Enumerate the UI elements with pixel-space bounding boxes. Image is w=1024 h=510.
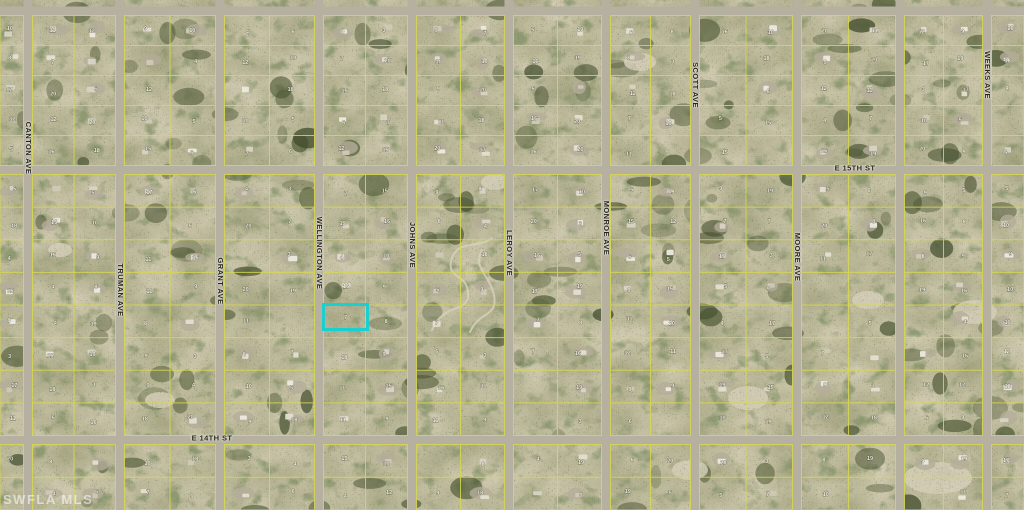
svg-text:12: 12 — [10, 116, 16, 122]
svg-text:7: 7 — [340, 57, 343, 63]
svg-text:5: 5 — [719, 493, 722, 499]
listing-map-photo: 1081712511127206122016189104121051564612… — [0, 0, 1024, 510]
svg-text:7: 7 — [723, 219, 726, 225]
svg-text:10: 10 — [719, 416, 725, 422]
svg-text:9: 9 — [824, 60, 827, 66]
svg-text:19: 19 — [290, 288, 296, 294]
svg-text:12: 12 — [822, 414, 828, 420]
street-label-e-14th-st: E 14TH ST — [192, 434, 233, 442]
svg-text:11: 11 — [627, 317, 633, 323]
svg-text:15: 15 — [386, 383, 392, 389]
svg-text:3: 3 — [671, 60, 674, 66]
svg-text:20: 20 — [385, 59, 391, 65]
svg-text:15: 15 — [382, 188, 388, 194]
svg-text:9: 9 — [480, 287, 483, 293]
svg-text:7: 7 — [245, 151, 248, 157]
svg-text:20: 20 — [89, 120, 95, 126]
svg-text:16: 16 — [962, 353, 968, 359]
svg-text:15: 15 — [667, 287, 673, 293]
svg-text:18: 18 — [288, 87, 294, 93]
svg-text:11: 11 — [438, 120, 444, 126]
street-label-canton-ave: CANTON AVE — [24, 122, 32, 175]
svg-text:18: 18 — [1005, 59, 1011, 65]
svg-text:8: 8 — [8, 56, 11, 62]
street-label-grant-ave: GRANT AVE — [216, 258, 224, 305]
svg-text:17: 17 — [1003, 458, 1009, 464]
svg-text:6: 6 — [291, 30, 294, 36]
svg-text:12: 12 — [89, 29, 95, 35]
svg-text:6: 6 — [292, 489, 295, 495]
svg-text:5: 5 — [959, 118, 962, 124]
svg-text:16: 16 — [961, 288, 967, 294]
svg-text:15: 15 — [145, 146, 151, 152]
svg-text:20: 20 — [245, 223, 251, 229]
svg-text:19: 19 — [957, 56, 963, 62]
svg-text:10: 10 — [579, 190, 585, 196]
svg-text:11: 11 — [145, 257, 151, 263]
svg-text:9: 9 — [921, 459, 924, 465]
svg-text:6: 6 — [190, 150, 193, 156]
svg-text:19: 19 — [668, 189, 674, 195]
svg-text:18: 18 — [477, 490, 483, 496]
svg-text:6: 6 — [628, 255, 631, 261]
svg-text:18: 18 — [341, 355, 347, 361]
svg-text:9: 9 — [383, 352, 386, 358]
svg-text:20: 20 — [577, 147, 583, 153]
svg-text:9: 9 — [961, 415, 964, 421]
svg-text:9: 9 — [194, 284, 197, 290]
street-label-e-15th-st: E 15TH ST — [835, 164, 876, 172]
svg-text:16: 16 — [438, 386, 444, 392]
svg-text:11: 11 — [867, 88, 873, 94]
svg-text:7: 7 — [483, 31, 486, 37]
svg-text:18: 18 — [291, 417, 297, 423]
svg-text:6: 6 — [95, 489, 98, 495]
svg-text:19: 19 — [578, 460, 584, 466]
street-label-leroy-ave: LEROY AVE — [505, 230, 513, 276]
svg-text:8: 8 — [671, 30, 674, 36]
svg-text:16: 16 — [48, 150, 54, 156]
svg-text:5: 5 — [292, 117, 295, 123]
svg-text:9: 9 — [435, 28, 438, 34]
svg-text:20: 20 — [669, 321, 675, 327]
svg-text:5: 5 — [436, 288, 439, 294]
svg-text:12: 12 — [821, 86, 827, 92]
svg-text:9: 9 — [147, 383, 150, 389]
svg-text:11: 11 — [10, 416, 16, 422]
svg-text:20: 20 — [7, 457, 13, 463]
street-label-johns-ave: JOHNS AVE — [408, 222, 416, 268]
svg-text:9: 9 — [145, 353, 148, 359]
svg-text:16: 16 — [532, 59, 538, 65]
svg-text:7: 7 — [288, 220, 291, 226]
svg-text:10: 10 — [92, 221, 98, 227]
svg-text:11: 11 — [146, 289, 152, 295]
svg-text:5: 5 — [962, 188, 965, 194]
svg-text:7: 7 — [344, 192, 347, 198]
svg-text:9: 9 — [385, 417, 388, 423]
svg-text:18: 18 — [192, 456, 198, 462]
svg-text:11: 11 — [339, 386, 345, 392]
svg-text:9: 9 — [961, 29, 964, 35]
svg-text:5: 5 — [667, 257, 670, 263]
street-label-truman-ave: TRUMAN AVE — [116, 263, 124, 316]
svg-text:16: 16 — [343, 284, 349, 290]
street-label-moore-ave: MOORE AVE — [793, 233, 801, 282]
svg-text:3: 3 — [484, 353, 487, 359]
svg-text:6: 6 — [629, 419, 632, 425]
svg-text:9: 9 — [719, 186, 722, 192]
svg-text:8: 8 — [482, 462, 485, 468]
svg-text:17: 17 — [532, 289, 538, 295]
street-label-weeks-ave: WEEKS AVE — [983, 51, 991, 99]
svg-text:8: 8 — [385, 319, 388, 325]
svg-text:18: 18 — [142, 417, 148, 423]
svg-text:17: 17 — [11, 383, 17, 389]
svg-text:7: 7 — [821, 351, 824, 357]
svg-text:10: 10 — [768, 30, 774, 36]
watermark: SWFLA MLS — [3, 492, 93, 507]
svg-text:19: 19 — [89, 352, 95, 358]
svg-text:15: 15 — [382, 148, 388, 154]
svg-text:15: 15 — [341, 456, 347, 462]
svg-text:16: 16 — [722, 30, 728, 36]
svg-text:16: 16 — [531, 116, 537, 122]
svg-text:9: 9 — [96, 255, 99, 261]
svg-text:9: 9 — [436, 490, 439, 496]
svg-text:19: 19 — [340, 221, 346, 227]
svg-text:7: 7 — [1005, 493, 1008, 499]
svg-text:20: 20 — [50, 92, 56, 98]
svg-text:5: 5 — [13, 187, 16, 193]
svg-text:16: 16 — [530, 150, 536, 156]
svg-text:8: 8 — [922, 254, 925, 260]
svg-text:17: 17 — [719, 254, 725, 260]
highlighted-parcel-outline — [322, 303, 369, 331]
svg-text:8: 8 — [963, 220, 966, 226]
svg-text:20: 20 — [480, 88, 486, 94]
svg-text:16: 16 — [821, 149, 827, 155]
svg-text:6: 6 — [631, 457, 634, 463]
svg-text:12: 12 — [923, 383, 929, 389]
svg-text:10: 10 — [246, 384, 252, 390]
svg-text:11: 11 — [50, 28, 56, 34]
svg-text:9: 9 — [580, 493, 583, 499]
svg-text:10: 10 — [383, 253, 389, 259]
svg-text:9: 9 — [383, 284, 386, 290]
svg-text:7: 7 — [435, 320, 438, 326]
svg-text:11: 11 — [243, 319, 249, 325]
svg-text:20: 20 — [574, 119, 580, 125]
svg-text:8: 8 — [822, 457, 825, 463]
svg-text:9: 9 — [144, 26, 147, 32]
svg-text:15: 15 — [342, 88, 348, 94]
svg-text:9: 9 — [767, 286, 770, 292]
svg-text:19: 19 — [765, 420, 771, 426]
svg-text:20: 20 — [821, 223, 827, 229]
svg-text:3: 3 — [537, 318, 540, 324]
svg-text:19: 19 — [767, 189, 773, 195]
svg-text:5: 5 — [52, 415, 55, 421]
svg-text:7: 7 — [869, 116, 872, 122]
svg-text:18: 18 — [871, 416, 877, 422]
svg-text:3: 3 — [872, 384, 875, 390]
svg-text:7: 7 — [387, 120, 390, 126]
svg-text:15: 15 — [765, 120, 771, 126]
svg-text:18: 18 — [669, 91, 675, 97]
svg-text:8: 8 — [478, 186, 481, 192]
svg-text:6: 6 — [342, 120, 345, 126]
svg-text:20: 20 — [720, 460, 726, 466]
svg-text:18: 18 — [94, 148, 100, 154]
svg-text:10: 10 — [577, 27, 583, 33]
svg-text:15: 15 — [768, 385, 774, 391]
svg-text:20: 20 — [243, 287, 249, 293]
svg-text:5: 5 — [91, 190, 94, 196]
svg-text:8: 8 — [144, 321, 147, 327]
svg-text:9: 9 — [627, 288, 630, 294]
svg-text:9: 9 — [962, 254, 965, 260]
svg-text:9: 9 — [435, 190, 438, 196]
svg-text:10: 10 — [145, 461, 151, 467]
svg-text:15: 15 — [47, 354, 53, 360]
svg-text:6: 6 — [767, 89, 770, 95]
svg-text:3: 3 — [248, 456, 251, 462]
street-label-scott-ave: SCOTT AVE — [691, 62, 699, 108]
svg-text:16: 16 — [920, 219, 926, 225]
svg-text:9: 9 — [823, 383, 826, 389]
svg-text:15: 15 — [193, 256, 199, 262]
svg-text:3: 3 — [627, 56, 630, 62]
svg-text:9: 9 — [963, 149, 966, 155]
svg-text:19: 19 — [577, 284, 583, 290]
svg-text:8: 8 — [49, 459, 52, 465]
svg-text:9: 9 — [437, 86, 440, 92]
svg-text:18: 18 — [1005, 384, 1011, 390]
svg-text:10: 10 — [141, 116, 147, 122]
svg-text:10: 10 — [436, 60, 442, 66]
svg-text:3: 3 — [770, 253, 773, 259]
svg-text:18: 18 — [49, 387, 55, 393]
svg-text:10: 10 — [189, 28, 195, 34]
svg-text:9: 9 — [671, 383, 674, 389]
svg-text:7: 7 — [628, 116, 631, 122]
svg-text:8: 8 — [872, 219, 875, 225]
svg-text:8: 8 — [341, 29, 344, 35]
svg-text:19: 19 — [867, 456, 873, 462]
svg-text:5: 5 — [719, 116, 722, 122]
svg-text:19: 19 — [91, 322, 97, 328]
svg-text:16: 16 — [91, 420, 97, 426]
svg-text:10: 10 — [290, 56, 296, 62]
svg-text:20: 20 — [188, 414, 194, 420]
svg-text:15: 15 — [628, 219, 634, 225]
svg-text:3: 3 — [194, 354, 197, 360]
svg-text:19: 19 — [666, 121, 672, 127]
svg-text:16: 16 — [190, 190, 196, 196]
svg-text:10: 10 — [383, 462, 389, 468]
svg-text:17: 17 — [146, 190, 152, 196]
svg-text:12: 12 — [959, 382, 965, 388]
svg-text:12: 12 — [146, 87, 152, 93]
svg-text:10: 10 — [921, 119, 927, 125]
svg-text:10: 10 — [1005, 320, 1011, 326]
svg-text:5: 5 — [189, 224, 192, 230]
svg-text:11: 11 — [340, 417, 346, 423]
svg-text:18: 18 — [11, 223, 17, 229]
svg-text:6: 6 — [925, 416, 928, 422]
svg-text:6: 6 — [629, 31, 632, 37]
svg-text:3: 3 — [288, 186, 291, 192]
svg-text:17: 17 — [722, 349, 728, 355]
svg-text:11: 11 — [626, 151, 632, 157]
svg-text:11: 11 — [481, 383, 487, 389]
svg-text:5: 5 — [826, 186, 829, 192]
svg-text:18: 18 — [479, 118, 485, 124]
svg-text:18: 18 — [382, 87, 388, 93]
svg-text:9: 9 — [483, 417, 486, 423]
svg-text:3: 3 — [92, 382, 95, 388]
svg-text:11: 11 — [872, 29, 878, 35]
svg-text:20: 20 — [434, 146, 440, 152]
svg-text:5: 5 — [10, 147, 13, 153]
svg-text:20: 20 — [1008, 26, 1014, 32]
svg-text:12: 12 — [338, 146, 344, 152]
svg-text:9: 9 — [248, 420, 251, 426]
svg-text:5: 5 — [869, 321, 872, 327]
svg-text:7: 7 — [532, 349, 535, 355]
svg-text:12: 12 — [630, 91, 636, 97]
svg-text:3: 3 — [579, 222, 582, 228]
svg-text:10: 10 — [243, 118, 249, 124]
svg-text:3: 3 — [579, 419, 582, 425]
svg-text:19: 19 — [575, 56, 581, 62]
svg-text:11: 11 — [820, 257, 826, 263]
svg-text:17: 17 — [769, 321, 775, 327]
svg-text:18: 18 — [482, 252, 488, 258]
svg-text:6: 6 — [94, 87, 97, 93]
svg-text:19: 19 — [870, 151, 876, 157]
svg-text:10: 10 — [482, 59, 488, 65]
svg-text:18: 18 — [763, 56, 769, 62]
svg-text:12: 12 — [918, 29, 924, 35]
svg-text:3: 3 — [922, 87, 925, 93]
svg-text:17: 17 — [6, 87, 12, 93]
svg-text:20: 20 — [919, 147, 925, 153]
svg-text:15: 15 — [722, 150, 728, 156]
svg-text:5: 5 — [578, 252, 581, 258]
svg-text:3: 3 — [382, 28, 385, 34]
svg-text:16: 16 — [534, 253, 540, 259]
svg-text:20: 20 — [822, 29, 828, 35]
svg-text:5: 5 — [669, 490, 672, 496]
svg-text:3: 3 — [288, 252, 291, 258]
svg-text:3: 3 — [765, 459, 768, 465]
svg-text:9: 9 — [924, 190, 927, 196]
svg-text:12: 12 — [242, 60, 248, 66]
svg-text:19: 19 — [576, 385, 582, 391]
svg-text:5: 5 — [630, 188, 633, 194]
svg-text:19: 19 — [719, 383, 725, 389]
svg-text:12: 12 — [1004, 349, 1010, 355]
svg-text:11: 11 — [433, 418, 439, 424]
svg-text:5: 5 — [765, 354, 768, 360]
svg-text:6: 6 — [435, 349, 438, 355]
street-label-monroe-ave: MONROE AVE — [602, 201, 610, 255]
svg-text:17: 17 — [479, 148, 485, 154]
svg-text:9: 9 — [190, 494, 193, 500]
svg-text:10: 10 — [1007, 287, 1013, 293]
svg-text:20: 20 — [871, 57, 877, 63]
svg-text:19: 19 — [919, 288, 925, 294]
svg-text:3: 3 — [8, 354, 11, 360]
svg-text:7: 7 — [766, 492, 769, 498]
svg-text:12: 12 — [670, 219, 676, 225]
svg-text:10: 10 — [1003, 223, 1009, 229]
svg-text:7: 7 — [291, 350, 294, 356]
svg-text:8: 8 — [579, 321, 582, 327]
svg-text:10: 10 — [823, 492, 829, 498]
svg-text:17: 17 — [532, 187, 538, 193]
svg-text:5: 5 — [531, 27, 534, 33]
svg-text:15: 15 — [7, 288, 13, 294]
svg-text:8: 8 — [94, 285, 97, 291]
street-label-wellington-ave: WELLINGTON AVE — [315, 217, 323, 290]
svg-text:20: 20 — [667, 458, 673, 464]
svg-text:6: 6 — [289, 149, 292, 155]
svg-text:12: 12 — [386, 490, 392, 496]
svg-text:6: 6 — [1004, 150, 1007, 156]
svg-text:5: 5 — [1005, 186, 1008, 192]
svg-text:8: 8 — [438, 219, 441, 225]
svg-text:7: 7 — [146, 490, 149, 496]
svg-text:8: 8 — [243, 352, 246, 358]
svg-text:12: 12 — [625, 350, 631, 356]
svg-text:11: 11 — [960, 489, 966, 495]
svg-text:11: 11 — [670, 349, 676, 355]
svg-text:9: 9 — [1009, 252, 1012, 258]
svg-text:6: 6 — [867, 188, 870, 194]
svg-text:17: 17 — [923, 61, 929, 67]
svg-text:16: 16 — [575, 351, 581, 357]
svg-text:16: 16 — [384, 219, 390, 225]
svg-text:9: 9 — [628, 387, 631, 393]
svg-text:19: 19 — [961, 456, 967, 462]
svg-text:5: 5 — [532, 87, 535, 93]
svg-text:7: 7 — [768, 219, 771, 225]
svg-text:17: 17 — [866, 251, 872, 257]
svg-text:8: 8 — [7, 318, 10, 324]
svg-text:5: 5 — [192, 119, 195, 125]
svg-text:5: 5 — [724, 284, 727, 290]
svg-text:7: 7 — [51, 60, 54, 66]
svg-text:15: 15 — [51, 220, 57, 226]
svg-text:12: 12 — [50, 117, 56, 123]
svg-text:10: 10 — [7, 26, 13, 32]
svg-text:20: 20 — [531, 219, 537, 225]
svg-text:15: 15 — [50, 252, 56, 258]
svg-text:5: 5 — [290, 386, 293, 392]
svg-text:19: 19 — [625, 489, 631, 495]
svg-text:17: 17 — [963, 87, 969, 93]
